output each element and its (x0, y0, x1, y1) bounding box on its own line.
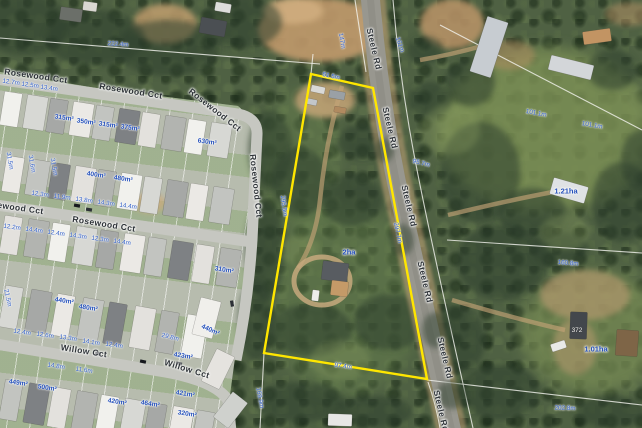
building-roof (201, 348, 235, 389)
house-roof (119, 398, 147, 428)
aerial-property-map[interactable]: Rosewood CctRosewood CctRosewood CctRose… (0, 0, 642, 428)
parked-car (86, 208, 92, 212)
building-roof (570, 312, 588, 340)
house-roof (93, 169, 116, 207)
house-roof (143, 402, 168, 428)
building-roof (311, 290, 319, 302)
house-roof (162, 179, 188, 218)
house-roof (154, 310, 179, 354)
house-roof (114, 108, 140, 145)
parked-car (230, 300, 234, 306)
house-roof (68, 101, 94, 138)
house-roof (1, 155, 24, 193)
house-roof (47, 222, 71, 262)
house-roof (50, 293, 75, 337)
house-roof (0, 91, 23, 127)
tree-clump (322, 174, 382, 226)
house-roof (22, 94, 48, 131)
house-roof (25, 289, 53, 334)
house-roof (119, 233, 146, 274)
house-roof (215, 247, 242, 288)
house-roof (47, 162, 70, 200)
house-roof (77, 297, 105, 342)
house-roof (160, 115, 186, 152)
parked-car (74, 204, 80, 208)
tree-clump (587, 50, 637, 90)
house-roof (45, 98, 68, 134)
building-roof (615, 329, 639, 356)
house-roof (137, 112, 160, 148)
dirt-patch (605, 2, 642, 26)
house-roof (167, 406, 195, 428)
house-roof (208, 186, 234, 225)
building-roof (59, 7, 83, 23)
house-roof (70, 166, 96, 205)
house-roof (95, 230, 119, 270)
parked-car (176, 361, 183, 366)
house-roof (0, 285, 24, 329)
map-scene (0, 0, 642, 428)
canopy-highlight (310, 340, 370, 380)
house-roof (47, 387, 72, 428)
building-roof (192, 297, 222, 339)
house-roof (95, 394, 120, 428)
house-roof (91, 105, 114, 141)
house-roof (102, 302, 127, 346)
house-roof (71, 390, 99, 428)
canopy-highlight (420, 105, 480, 155)
house-roof (71, 226, 98, 267)
tree-overhang (422, 312, 450, 348)
house-roof (23, 383, 51, 426)
building-roof (582, 28, 612, 45)
house-roof (143, 237, 167, 277)
house-roof (191, 410, 216, 428)
house-roof (191, 244, 215, 284)
house-roof (23, 218, 50, 259)
house-roof (183, 119, 206, 155)
house-roof (24, 159, 50, 198)
building-roof (321, 260, 349, 282)
building-roof (328, 414, 352, 427)
house-roof (0, 215, 23, 255)
house-roof (185, 183, 208, 221)
building-roof (330, 280, 349, 297)
house-roof (0, 379, 23, 422)
house-roof (129, 306, 157, 351)
house-roof (206, 122, 232, 159)
canopy-highlight (540, 214, 590, 250)
tree-overhang (436, 381, 468, 409)
building-roof (82, 1, 97, 12)
house-roof (167, 240, 194, 281)
